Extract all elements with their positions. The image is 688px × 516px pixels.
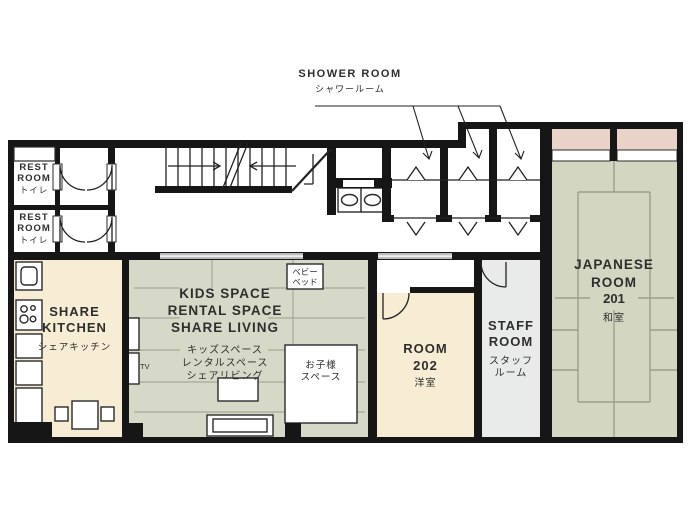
staff-room-label: STAFF ROOM スタッフルーム xyxy=(482,318,540,381)
wall-closet-divider xyxy=(610,129,617,161)
rest-room-1-name-en: REST ROOM xyxy=(12,163,56,185)
wall-shower-3 xyxy=(489,129,497,222)
wall-bottom xyxy=(8,437,683,443)
room-202-name-ja: 洋室 xyxy=(377,378,474,390)
wall-stub-bottom-left xyxy=(8,422,52,443)
share-kitchen-name-en: SHARE KITCHEN xyxy=(32,304,117,337)
leader-diagonal xyxy=(413,106,429,159)
kitchen-counter xyxy=(16,361,42,385)
wall-top-step xyxy=(458,122,466,148)
wall-stub xyxy=(123,423,143,437)
folding-door-icon xyxy=(509,222,527,235)
wall-202-vestibule xyxy=(410,287,474,293)
kitchen-table xyxy=(72,401,98,429)
room-202-name-en: ROOM xyxy=(377,341,474,358)
share-kitchen-label: SHARE KITCHEN シェアキッチン xyxy=(27,304,122,353)
baby-bed-ja1: ベビー xyxy=(287,267,323,277)
restroom-closet-strip xyxy=(14,147,55,161)
wall-top-right xyxy=(458,122,683,129)
closet-shelf-left xyxy=(552,150,610,161)
staff-room-name-ja: スタッフルーム xyxy=(488,356,534,381)
washstand-mirror xyxy=(343,180,374,187)
kitchen-chair xyxy=(101,407,114,421)
wall-top-left xyxy=(8,140,462,148)
kitchen-counter xyxy=(16,388,42,424)
rest-room-1-label: REST ROOM トイレ xyxy=(12,163,56,196)
folding-door-icon xyxy=(509,167,527,180)
washbasin xyxy=(342,195,358,206)
closet-shelf-right xyxy=(617,150,677,161)
kids-space-label: KIDS SPACE RENTAL SPACE SHARE LIVING キッズ… xyxy=(158,286,292,383)
tv-text: TV xyxy=(140,362,150,371)
kids-corner-ja1: お子様 xyxy=(285,360,357,372)
tv-label: TV xyxy=(140,363,158,372)
shower-room-name-ja: シャワールーム xyxy=(280,84,420,94)
kitchen-sink-basin xyxy=(21,267,37,285)
kids-space-line3: SHARE LIVING xyxy=(158,320,292,337)
folding-door-icon xyxy=(459,167,477,180)
wall-living-202 xyxy=(368,260,377,437)
kids-space-ja3: シェアリビング xyxy=(158,370,292,383)
room-202-number: 202 xyxy=(377,358,474,375)
wall-stub xyxy=(285,423,301,437)
folding-door-icon xyxy=(407,167,425,180)
staircase xyxy=(166,143,331,191)
share-kitchen-name-ja: シェアキッチン xyxy=(27,343,122,354)
rest-room-2-name-en: REST ROOM xyxy=(12,213,56,235)
baby-bed-label: ベビー ベッド xyxy=(287,267,323,287)
shower-room-label: SHOWER ROOM シャワールーム xyxy=(280,68,420,94)
rest-room-2-label: REST ROOM トイレ xyxy=(12,213,56,246)
kitchen-chair xyxy=(55,407,68,421)
kids-space-line2: RENTAL SPACE xyxy=(158,303,292,320)
staff-room-name-en: STAFF ROOM xyxy=(485,318,537,351)
window-band-living-line xyxy=(160,255,303,256)
wall-shower-1 xyxy=(382,147,391,222)
closet-right xyxy=(617,129,677,150)
wall-202-staff xyxy=(474,260,482,437)
wall-kitchen-living xyxy=(122,260,129,437)
washbasin xyxy=(365,195,381,206)
shower-room-name-en: SHOWER ROOM xyxy=(280,68,420,81)
rest-room-1-name-ja: トイレ xyxy=(12,186,56,196)
japanese-room-name-en: JAPANESE ROOM xyxy=(550,256,678,291)
sofa-seat xyxy=(213,419,267,432)
kids-corner-ja2: スペース xyxy=(285,372,357,384)
restroom1-door-arc xyxy=(60,165,85,190)
japanese-room-number: 201 xyxy=(550,291,678,308)
japanese-room-label: JAPANESE ROOM 201 和室 xyxy=(550,256,678,324)
stair-corner-line xyxy=(292,149,331,191)
baby-bed-ja2: ベッド xyxy=(287,277,323,287)
kids-space-line1: KIDS SPACE xyxy=(158,286,292,303)
kids-corner-label: お子様 スペース xyxy=(285,360,357,385)
window-band-202-line xyxy=(378,255,452,256)
leader-diagonal xyxy=(500,106,521,159)
folding-door-icon xyxy=(459,222,477,235)
folding-door-icon xyxy=(407,222,425,235)
restroom2-door-arc xyxy=(60,217,85,242)
wall-shower-2 xyxy=(440,147,448,222)
floor-plan: SHOWER ROOM シャワールーム REST ROOM トイレ REST R… xyxy=(0,0,688,516)
wall-restroom-divider xyxy=(14,205,108,210)
shower-stalls xyxy=(391,167,540,235)
closet-left xyxy=(552,129,610,150)
kids-space-ja1: キッズスペース xyxy=(158,344,292,357)
rest-room-2-name-ja: トイレ xyxy=(12,236,56,246)
room-202-label: ROOM 202 洋室 xyxy=(377,341,474,389)
wall-stair-stub xyxy=(327,147,336,215)
japanese-room-name-ja: 和室 xyxy=(550,313,678,325)
kids-space-ja2: レンタルスペース xyxy=(158,357,292,370)
